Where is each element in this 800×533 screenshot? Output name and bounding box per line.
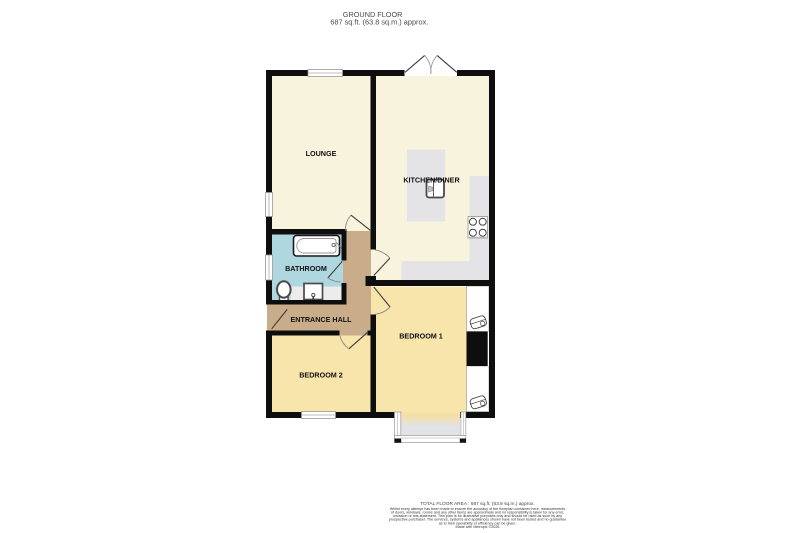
svg-text:BATHROOM: BATHROOM [285,264,327,273]
svg-text:LOUNGE: LOUNGE [306,149,337,158]
svg-text:BEDROOM 2: BEDROOM 2 [299,371,343,380]
svg-text:ENTRANCE HALL: ENTRANCE HALL [290,315,352,324]
svg-text:BEDROOM 1: BEDROOM 1 [399,331,443,340]
svg-text:KITCHEN/DINER: KITCHEN/DINER [403,175,460,184]
svg-text:Made with Metropix ©2026: Made with Metropix ©2026 [456,525,500,529]
svg-text:687 sq.ft. (63.8 sq.m.) approx: 687 sq.ft. (63.8 sq.m.) approx. [330,17,428,26]
